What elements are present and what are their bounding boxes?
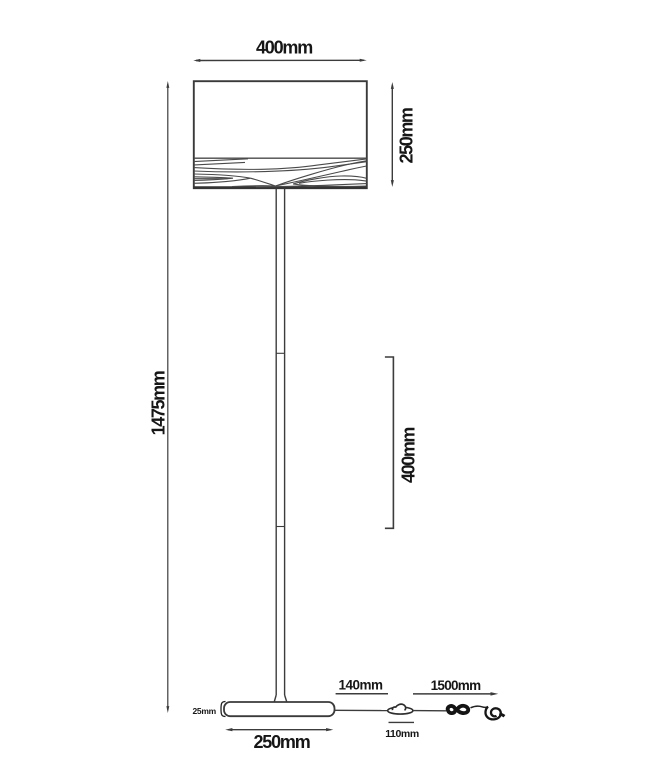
svg-text:110mm: 110mm: [385, 728, 419, 740]
svg-text:400mm: 400mm: [398, 428, 418, 483]
svg-text:1500mm: 1500mm: [431, 678, 482, 693]
svg-text:400mm: 400mm: [256, 38, 312, 58]
svg-text:250mm: 250mm: [397, 108, 417, 163]
svg-text:25mm: 25mm: [193, 706, 217, 716]
svg-text:1475mm: 1475mm: [148, 371, 168, 435]
svg-text:250mm: 250mm: [253, 732, 309, 752]
svg-text:140mm: 140mm: [338, 678, 383, 693]
